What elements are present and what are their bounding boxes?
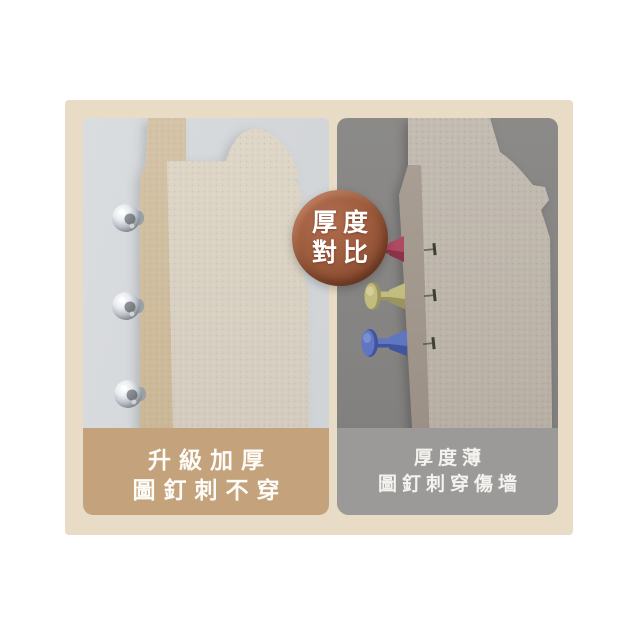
metal-pin-middle [112, 292, 144, 320]
badge-line2: 對比 [306, 238, 374, 268]
product-comparison-image: 升級加厚 圖釘刺不穿 [0, 0, 640, 640]
badge-line1: 厚度 [306, 208, 374, 238]
right-caption-line1: 厚度薄 [409, 447, 486, 470]
yellow-pushpin [365, 282, 406, 310]
thickness-comparison-badge: 厚度 對比 [292, 190, 388, 286]
right-caption-line2: 圖釘刺穿傷墙 [373, 473, 522, 496]
left-caption-line1: 升級加厚 [140, 445, 272, 475]
right-caption-band: 厚度薄 圖釘刺穿傷墙 [337, 428, 558, 515]
left-caption-band: 升級加厚 圖釘刺不穿 [83, 428, 329, 515]
metal-pin-top [112, 204, 144, 232]
blue-pushpin [362, 329, 408, 357]
thick-board-panel: 升級加厚 圖釘刺不穿 [83, 118, 329, 515]
thin-board-panel: 厚度薄 圖釘刺穿傷墙 [337, 118, 558, 515]
left-caption-line2: 圖釘刺不穿 [125, 475, 288, 505]
